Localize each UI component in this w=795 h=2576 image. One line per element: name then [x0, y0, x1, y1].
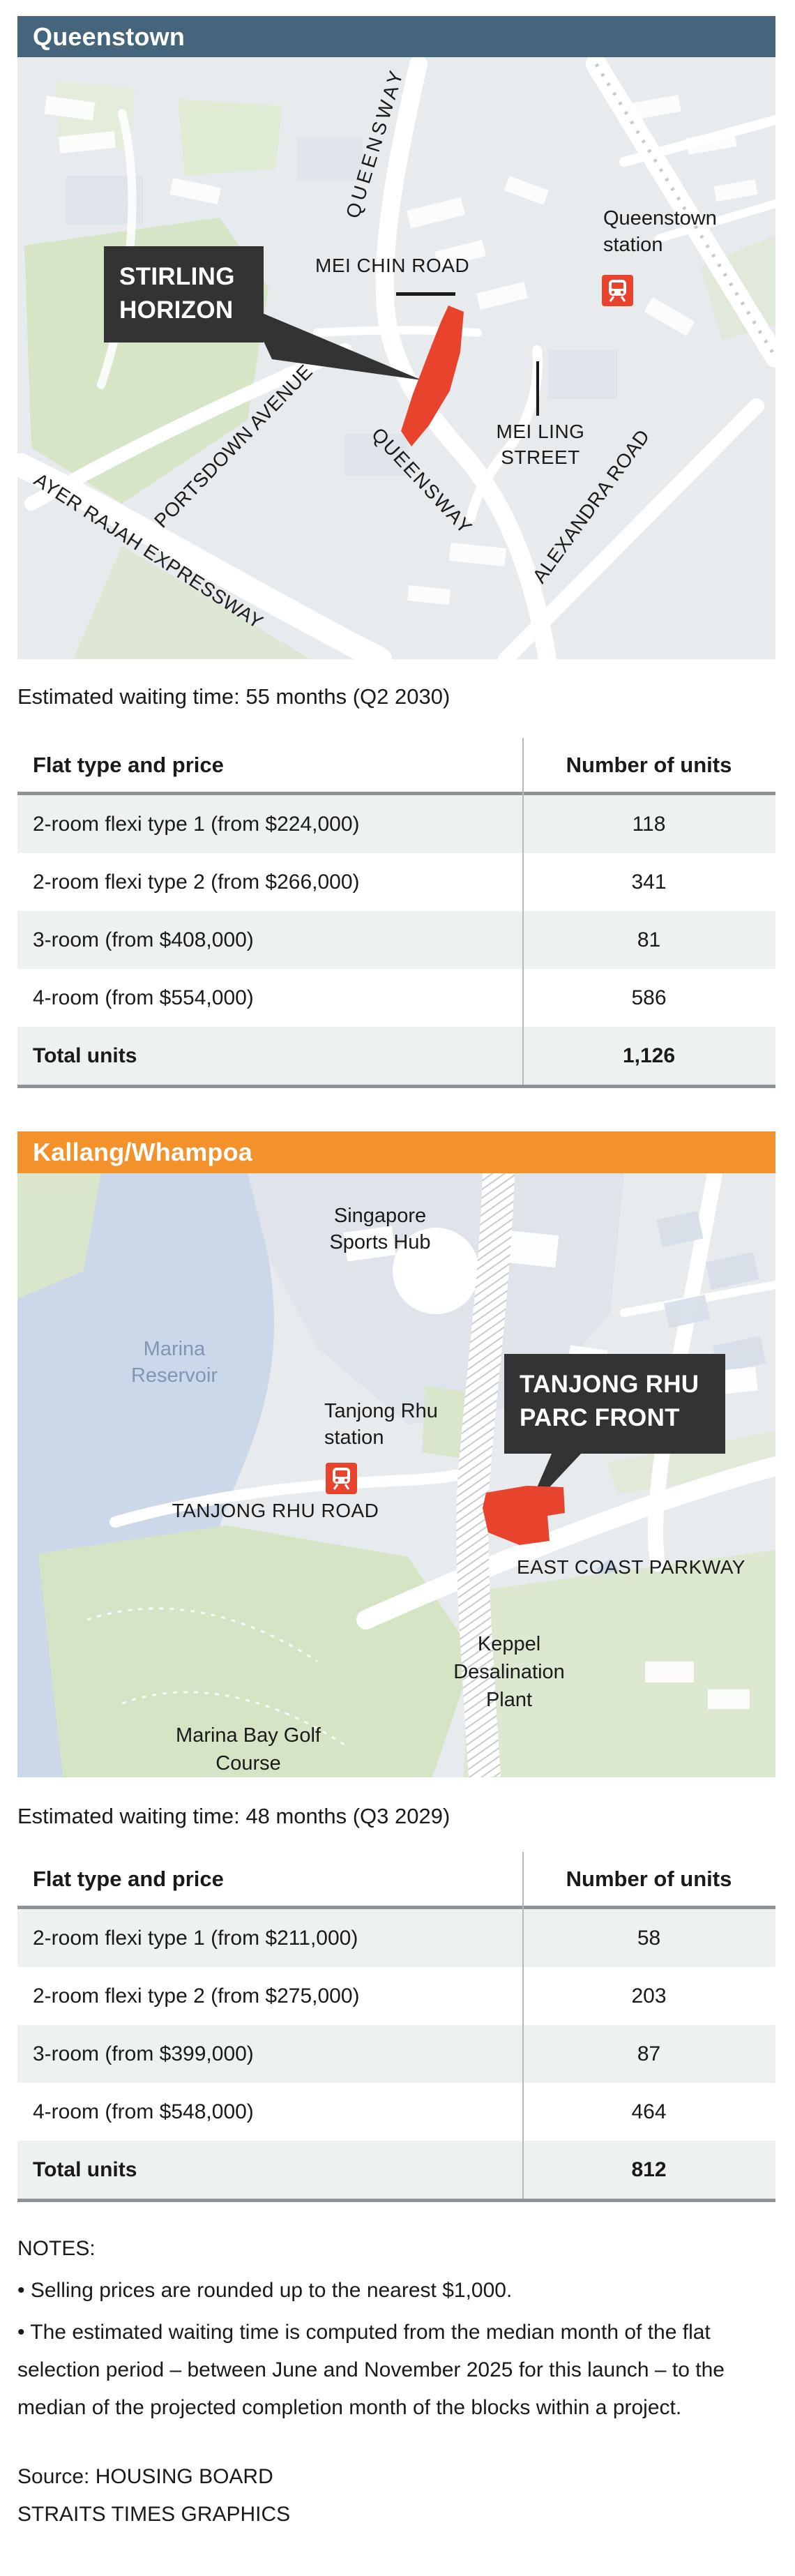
row-label: 4-room (from $548,000) — [17, 2100, 522, 2124]
row-value: 464 — [522, 2100, 775, 2124]
mei-ling-pointer-line — [536, 361, 539, 416]
map-kallang: Singapore Sports Hub Marina Reservoir Ta… — [17, 1173, 775, 1777]
poi-label-keppel-plant: Keppel Desalination Plant — [432, 1630, 586, 1714]
road-label-mei-chin: MEI CHIN ROAD — [315, 253, 427, 278]
row-label: 4-room (from $554,000) — [17, 986, 522, 1010]
callout-stirling-horizon: STIRLING HORIZON — [104, 246, 264, 342]
note-bullet: • Selling prices are rounded up to the n… — [17, 2272, 757, 2310]
table-header-flat-type: Flat type and price — [17, 1867, 522, 1892]
infographic-page: Queenstown — [0, 0, 795, 2576]
table-row: 4-room (from $554,000) 586 — [17, 969, 775, 1027]
row-value: 203 — [522, 1984, 775, 2008]
table-row: 3-room (from $399,000) 87 — [17, 2025, 775, 2083]
total-value: 1,126 — [522, 1044, 775, 1068]
waiting-time-queenstown: Estimated waiting time: 55 months (Q2 20… — [17, 682, 775, 711]
content-column: Queenstown — [17, 16, 775, 2533]
map-queenstown: QUEENSWAY Queenstown station MEI CHIN RO… — [17, 57, 775, 659]
table-column-divider — [522, 738, 524, 1085]
table-header-flat-type: Flat type and price — [17, 753, 522, 778]
credit-line: STRAITS TIMES GRAPHICS — [17, 2496, 775, 2533]
table-header-units: Number of units — [522, 753, 775, 778]
table-header-row: Flat type and price Number of units — [17, 1852, 775, 1906]
note-bullet: • The estimated waiting time is computed… — [17, 2314, 757, 2427]
row-label: 2-room flexi type 2 (from $266,000) — [17, 871, 522, 894]
table-row: 2-room flexi type 1 (from $211,000) 58 — [17, 1909, 775, 1967]
flat-table-queenstown: Flat type and price Number of units 2-ro… — [17, 738, 775, 1088]
row-label: 2-room flexi type 2 (from $275,000) — [17, 1984, 522, 2008]
row-value: 118 — [522, 813, 775, 836]
table-row: 3-room (from $408,000) 81 — [17, 911, 775, 969]
notes-title: NOTES: — [17, 2230, 757, 2268]
row-value: 586 — [522, 986, 775, 1010]
table-total-row: Total units 1,126 — [17, 1027, 775, 1085]
total-label: Total units — [17, 2158, 522, 2182]
source-block: Source: HOUSING BOARD STRAITS TIMES GRAP… — [17, 2458, 775, 2533]
row-label: 3-room (from $408,000) — [17, 928, 522, 952]
callout-tanjong-rhu-parc-front: TANJONG RHU PARC FRONT — [504, 1354, 725, 1454]
row-value: 81 — [522, 928, 775, 952]
table-header-row: Flat type and price Number of units — [17, 738, 775, 792]
mei-chin-pointer-dash — [396, 292, 455, 296]
mrt-station-icon — [602, 275, 633, 306]
table-bottom-rule — [17, 2199, 775, 2202]
section-header-kallang: Kallang/Whampoa — [17, 1131, 775, 1173]
table-column-divider — [522, 1852, 524, 2199]
top-spacer — [0, 0, 795, 16]
table-row: 2-room flexi type 2 (from $275,000) 203 — [17, 1967, 775, 2025]
table-bottom-rule — [17, 1085, 775, 1088]
mrt-station-icon — [326, 1463, 357, 1494]
table-row: 2-room flexi type 1 (from $224,000) 118 — [17, 795, 775, 853]
table-row: 4-room (from $548,000) 464 — [17, 2083, 775, 2141]
poi-label-golf-course: Marina Bay Golf Course — [172, 1722, 325, 1777]
station-label-queenstown: Queenstown station — [603, 205, 760, 258]
flat-table-kallang: Flat type and price Number of units 2-ro… — [17, 1852, 775, 2202]
row-label: 3-room (from $399,000) — [17, 2042, 522, 2066]
row-label: 2-room flexi type 1 (from $211,000) — [17, 1927, 522, 1950]
water-label-marina-reservoir: Marina Reservoir — [112, 1336, 237, 1389]
map-background-art — [17, 57, 775, 659]
road-label-east-coast-parkway: EAST COAST PARKWAY — [499, 1554, 764, 1581]
section-header-queenstown: Queenstown — [17, 16, 775, 57]
total-label: Total units — [17, 1044, 522, 1068]
road-label-tanjong-rhu-road: TANJONG RHU ROAD — [143, 1498, 408, 1524]
row-value: 341 — [522, 871, 775, 894]
station-label-tanjong-rhu: Tanjong Rhu station — [324, 1398, 464, 1451]
poi-label-sports-hub: Singapore Sports Hub — [310, 1203, 450, 1256]
row-value: 87 — [522, 2042, 775, 2066]
map-background-art — [17, 1173, 775, 1777]
notes-block: NOTES: • Selling prices are rounded up t… — [17, 2230, 757, 2427]
waiting-time-kallang: Estimated waiting time: 48 months (Q3 20… — [17, 1802, 775, 1831]
row-label: 2-room flexi type 1 (from $224,000) — [17, 813, 522, 836]
table-header-units: Number of units — [522, 1867, 775, 1892]
row-value: 58 — [522, 1927, 775, 1950]
total-value: 812 — [522, 2158, 775, 2182]
road-label-mei-ling: MEI LING STREET — [478, 419, 603, 470]
table-row: 2-room flexi type 2 (from $266,000) 341 — [17, 853, 775, 911]
source-line: Source: HOUSING BOARD — [17, 2458, 775, 2496]
table-total-row: Total units 812 — [17, 2141, 775, 2199]
